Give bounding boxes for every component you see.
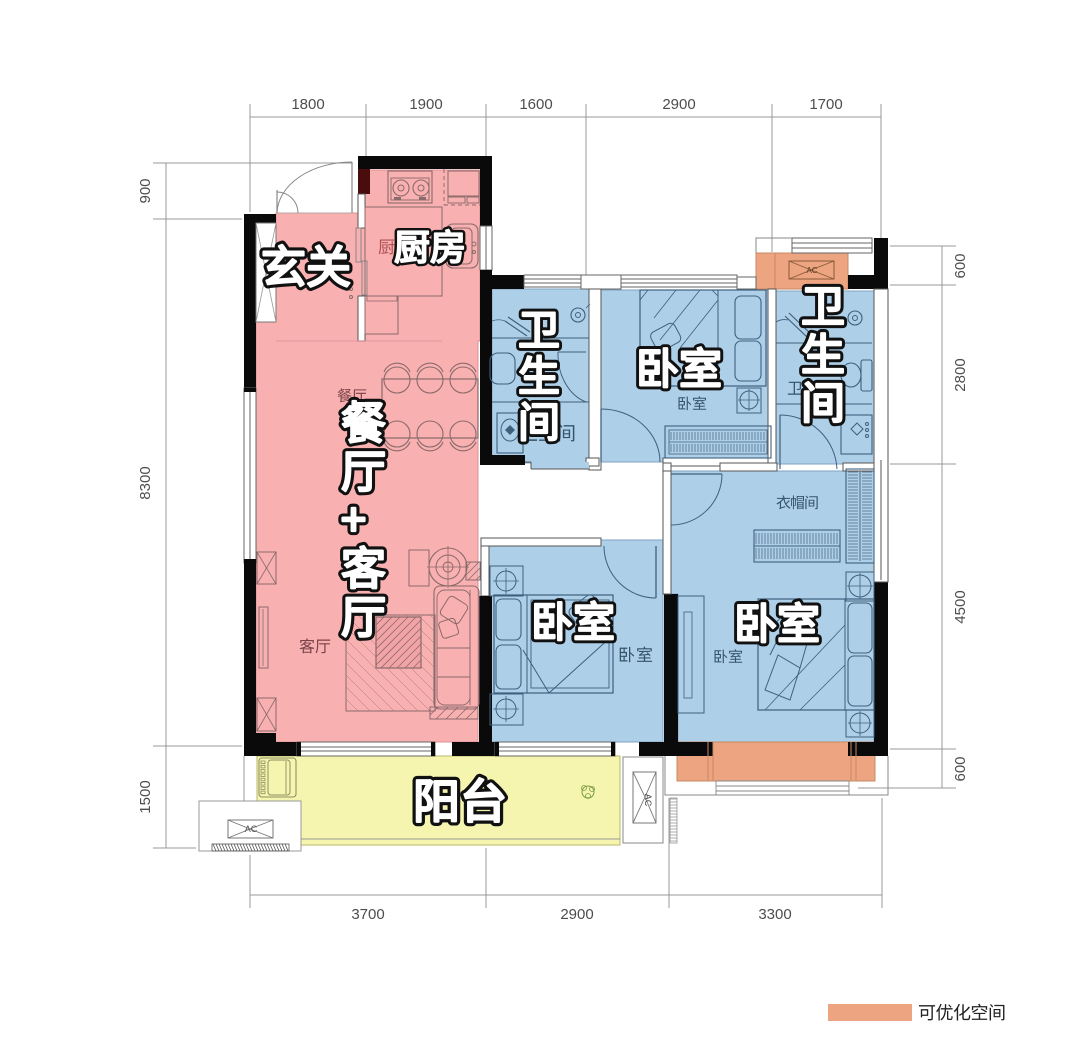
svg-text:AC: AC: [806, 266, 817, 275]
svg-text:AC: AC: [643, 794, 653, 807]
svg-text:600: 600: [952, 756, 969, 781]
svg-text:1500: 1500: [137, 780, 154, 813]
svg-text:900: 900: [137, 178, 154, 203]
svg-text:2900: 2900: [662, 96, 695, 113]
svg-text:3700: 3700: [351, 906, 384, 923]
svg-text:1800: 1800: [291, 96, 324, 113]
svg-text:2800: 2800: [952, 358, 969, 391]
svg-text:AC: AC: [245, 824, 258, 834]
svg-text:3300: 3300: [758, 906, 791, 923]
svg-text:2900: 2900: [560, 906, 593, 923]
svg-text:1900: 1900: [409, 96, 442, 113]
svg-text:600: 600: [952, 253, 969, 278]
svg-text:1700: 1700: [809, 96, 842, 113]
svg-text:8300: 8300: [137, 466, 154, 499]
svg-text:1600: 1600: [519, 96, 552, 113]
svg-text:4500: 4500: [952, 590, 969, 623]
